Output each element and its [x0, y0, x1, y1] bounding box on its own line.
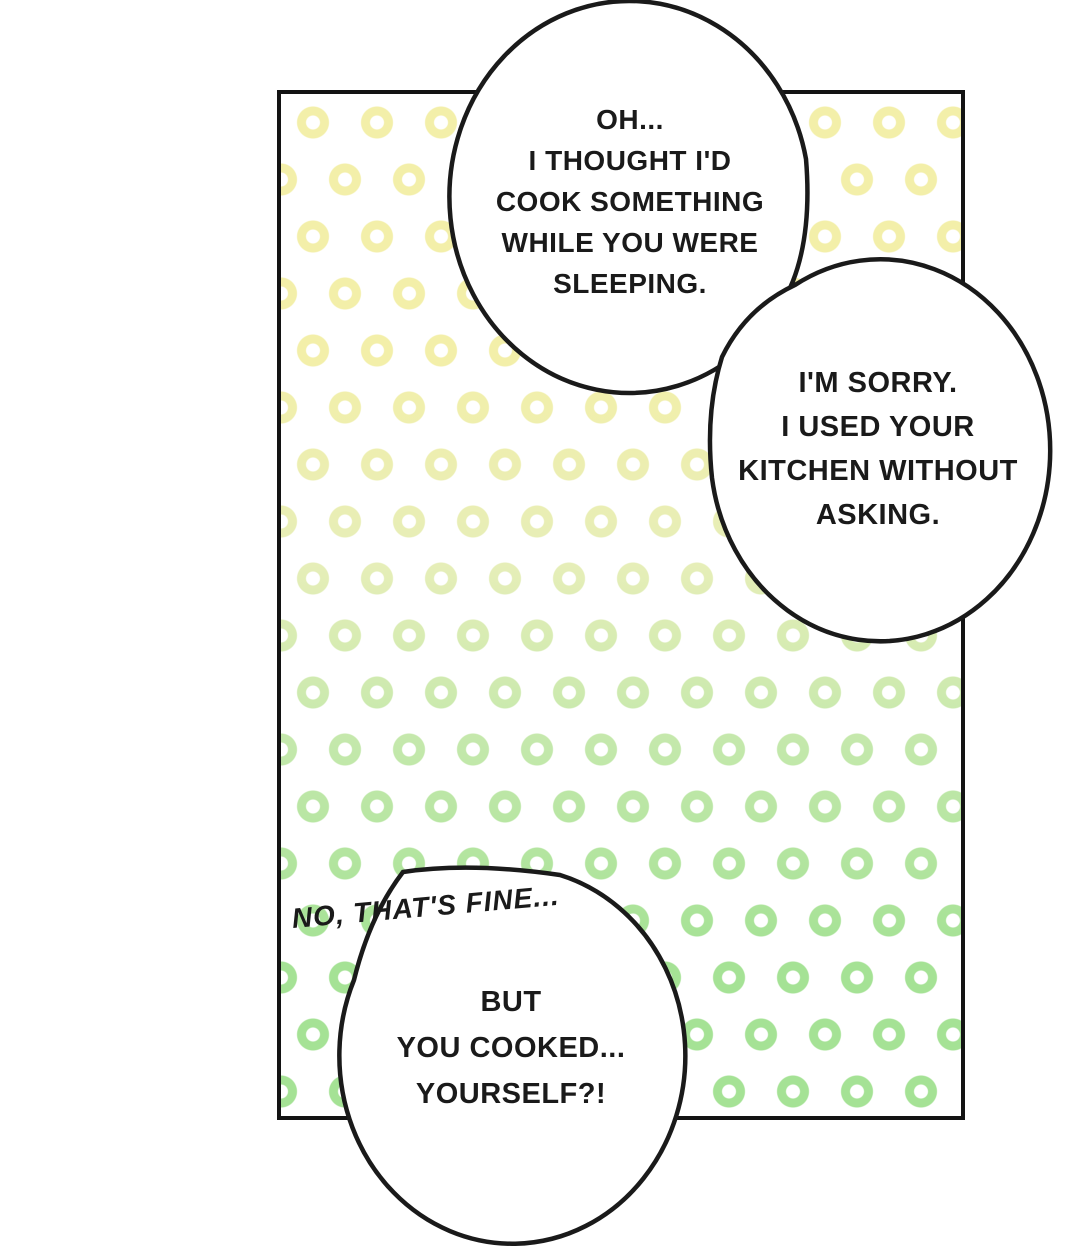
dialogue-line: YOU COOKED...	[397, 1025, 626, 1071]
dialogue-line: OH...	[596, 99, 664, 140]
dialogue-line: SLEEPING.	[553, 263, 707, 304]
dialogue-line: I'M SORRY.	[798, 361, 957, 405]
speech-bubble-right-text: I'M SORRY. I USED YOUR KITCHEN WITHOUT A…	[708, 361, 1048, 537]
speech-bubble-bottom-text: BUT YOU COOKED... YOURSELF?!	[341, 979, 681, 1117]
dialogue-line: WHILE YOU WERE	[502, 222, 759, 263]
speech-bubble-top-text: OH... I THOUGHT I'D COOK SOMETHING WHILE…	[430, 99, 830, 304]
comic-page: OH... I THOUGHT I'D COOK SOMETHING WHILE…	[0, 0, 1080, 1251]
dialogue-line: ASKING.	[816, 493, 940, 537]
dialogue-line: KITCHEN WITHOUT	[738, 449, 1018, 493]
dialogue-line: COOK SOMETHING	[496, 181, 764, 222]
dialogue-line: BUT	[480, 979, 541, 1025]
dialogue-line: I USED YOUR	[781, 405, 975, 449]
dialogue-line: I THOUGHT I'D	[529, 140, 732, 181]
dialogue-line: YOURSELF?!	[416, 1071, 606, 1117]
